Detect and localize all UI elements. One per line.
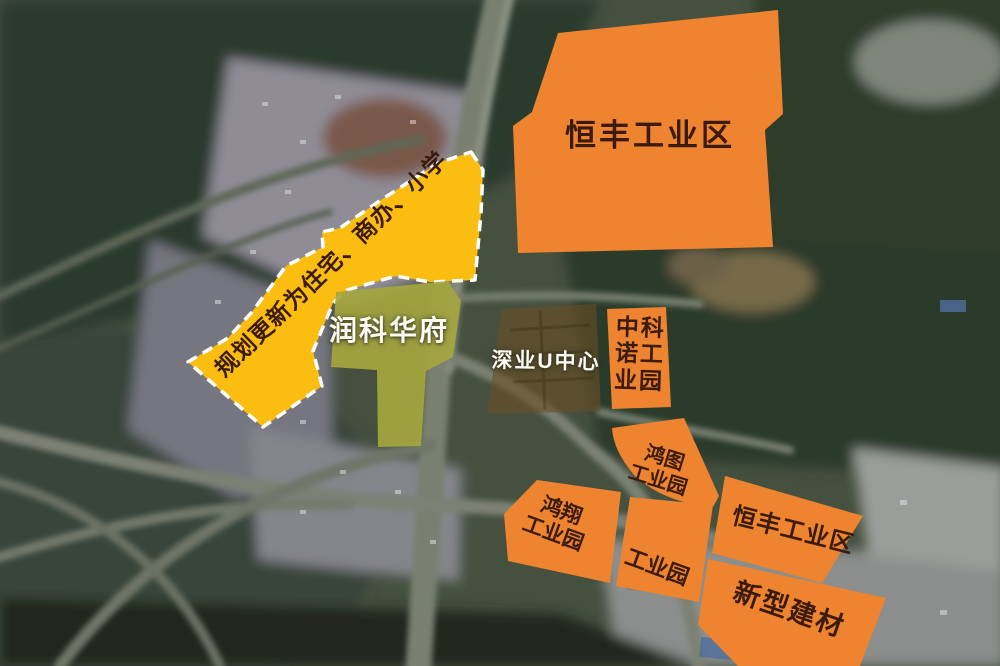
label-shenye-u-center: 深业U中心 [491,349,601,375]
zone-overlays [0,0,1000,666]
label-zhongkenuo-park: 中科 诺工 业园 [614,313,667,394]
planning-map: 恒丰工业区 规划更新为住宅、商办、小学 润科华府 深业U中心 中科 诺工 业园 … [0,0,1000,666]
label-hengfeng-top: 恒丰工业区 [565,118,735,154]
label-runke-huafu: 润科华府 [329,315,449,347]
zone-runke-huafu [331,281,461,447]
label-zhongkenuo-line2: 诺工 [615,340,666,368]
label-zhongkenuo-line1: 中科 [615,313,666,341]
label-zhongkenuo-line3: 业园 [614,366,665,394]
